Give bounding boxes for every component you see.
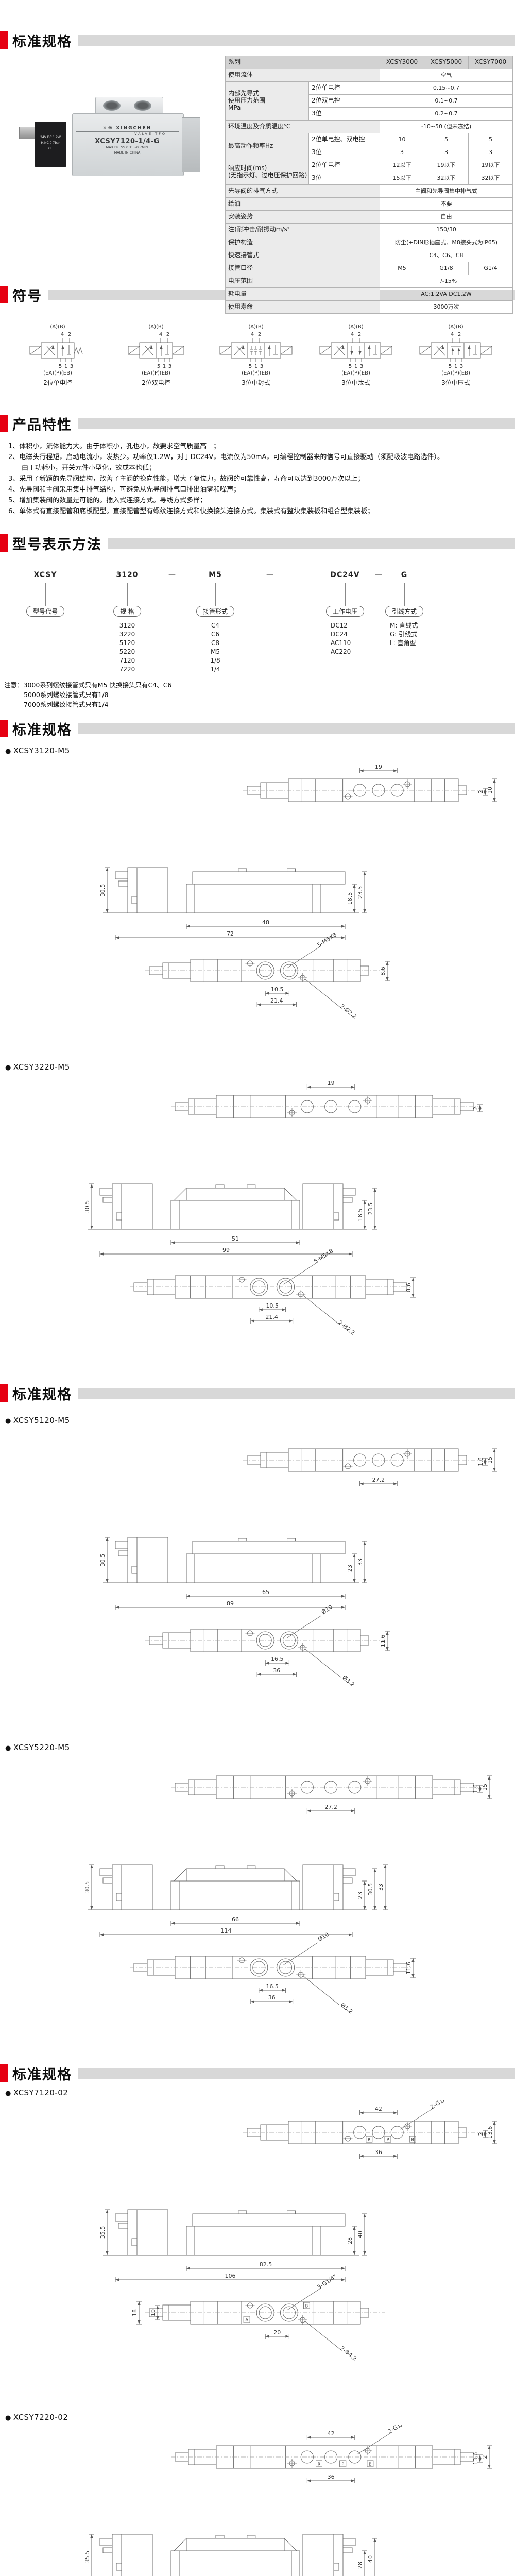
svg-text:4: 4 [451,332,454,337]
model-part: C6 [211,630,219,638]
svg-text:19: 19 [328,1080,335,1087]
svg-text:Ø3.2: Ø3.2 [339,2002,354,2015]
table-cell: 环境温度及介质温度℃ [226,121,380,133]
svg-text:99: 99 [222,1247,230,1253]
table-cell: 5 [424,133,469,146]
svg-text:3: 3 [168,364,171,369]
table-cell: 主阀和先导阀集中排气式 [380,185,513,198]
section-marker [0,534,8,552]
svg-text:15: 15 [482,1784,488,1791]
drawing-label-xcsy3220-m5: ●XCSY3220-M5 [5,1062,70,1072]
svg-text:2: 2 [358,332,361,337]
table-cell: 32以下 [424,172,469,185]
svg-text:B: B [369,2462,372,2467]
feature-line: 5、增加集装阀的数量是可能的。插入式连接方式。导线方式多样； [8,495,508,506]
valve-faceplate: ✕® XINGCHEN VALVE TFQ XCSY7120-1/4-G MAX… [76,126,179,156]
svg-text:18: 18 [131,2309,138,2316]
model-part [45,583,46,606]
section-title: 标准规格 [12,30,72,50]
model-part: C8 [211,639,219,647]
table-row: 最高动作频率Hz2位单电控、双电控1055 [226,133,513,146]
drawing-label-xcsy5120-m5: ●XCSY5120-M5 [5,1416,70,1425]
svg-text:36: 36 [268,1994,276,2001]
table-row: 使用流体空气 [226,69,513,82]
svg-text:42: 42 [375,2106,382,2112]
svg-text:4: 4 [61,332,64,337]
section-header-features: 产品特性 [0,414,515,433]
table-cell: 系列 [226,56,380,69]
table-cell: 3 [424,146,469,159]
section-title: 标准规格 [12,719,72,739]
svg-text:2-Ø2.2: 2-Ø2.2 [339,1003,358,1020]
datasheet-page: 标准规格 符号 产品特性 型号表示方法 标准规格 标准规格 标准规格 24V D… [0,0,515,2576]
svg-text:36: 36 [375,2149,382,2156]
feature-line: 6、单体式有直接配管和底板配型。直接配管型有螺纹连接方式和快换接头连接方式。集装… [8,506,508,517]
table-cell: G1/4 [469,262,513,275]
svg-text:(EA)(P)(EB): (EA)(P)(EB) [341,370,370,376]
valve-symbol-3位中泄式: (A)(B)42513(EA)(P)(EB)3位中泄式 [320,324,392,386]
table-cell: 5 [469,133,513,146]
feature-list: 1、体积小，流体能力大。由于体积小，孔也小，故要求空气质量高 ；2、电磁头行程短… [8,441,508,517]
table-cell: 2位双电控 [309,95,380,108]
table-cell: 3 [469,146,513,159]
section-bar [78,418,515,429]
model-part [404,583,405,606]
table-cell: 使用流体 [226,69,380,82]
svg-text:5: 5 [249,364,252,369]
svg-text:2: 2 [68,332,71,337]
svg-text:5: 5 [449,364,452,369]
svg-text:82.5: 82.5 [260,2261,272,2268]
svg-text:2位双电控: 2位双电控 [142,379,170,386]
top-view: 19210 [243,764,497,802]
drawing-xcsy7120-02: 42213.6362-G1/8"RPB35.5284082.5106181020… [0,2100,515,2399]
section-title: 产品特性 [12,414,72,434]
section-bar [78,1388,515,1399]
svg-text:R: R [368,2138,371,2142]
model-part: 7220 [119,665,135,673]
table-row: 快速接管式C4、C6、C8 [226,249,513,262]
svg-text:35.5: 35.5 [84,2551,91,2564]
valve-symbol-2位单电控: (A)(B)42513(EA)(P)(EB)2位单电控 [30,324,82,386]
table-cell: M5 [380,262,424,275]
front-view: 30.518.523.55199 [84,1184,377,1257]
svg-text:10: 10 [150,2309,157,2316]
model-part: DC24 [331,630,348,638]
drawing-xcsy5220-m5: 1.61527.230.52330.5336611411.616.536Ø10Ø… [0,1755,515,2049]
model-part: DC24V [326,571,364,580]
section-marker [0,286,8,303]
svg-text:28: 28 [357,2562,364,2569]
model-part: 3120 [112,571,143,580]
svg-text:72: 72 [227,930,234,937]
svg-text:15: 15 [487,1456,493,1464]
brand-logo-text: ✕® XINGCHEN [76,126,179,131]
table-cell: XCSY7000 [469,56,513,69]
section-marker [0,31,8,49]
svg-text:3位中泄式: 3位中泄式 [341,379,370,386]
svg-text:27.2: 27.2 [372,1477,385,1483]
drawing-label-xcsy7120-02: ●XCSY7120-02 [5,2088,68,2097]
model-note: 注意：3000系列螺纹接管式只有M5 快换接头只有C4、C6 [4,680,171,690]
svg-text:51: 51 [232,1235,239,1242]
model-part: XCSY [29,571,61,580]
svg-text:2-G1/8": 2-G1/8" [387,2425,409,2435]
table-cell: 安装姿势 [226,211,380,224]
svg-text:30.5: 30.5 [84,1881,91,1894]
svg-text:(A)(B): (A)(B) [248,324,263,330]
front-view: 35.52840132 [84,2534,377,2576]
svg-text:2-Φ4.2: 2-Φ4.2 [339,2345,358,2362]
model-part: 1/8 [210,656,220,665]
table-cell: 2位单电控 [309,82,380,95]
table-cell: 不要 [380,198,513,211]
svg-text:(A)(B): (A)(B) [348,324,363,330]
svg-text:3位中封式: 3位中封式 [242,379,270,386]
table-cell: 0.2~0.7 [380,108,513,121]
brand-valve-text: VALVE TFQ [76,131,179,136]
drawing-label-xcsy5220-m5: ●XCSY5220-M5 [5,1743,70,1752]
table-cell: XCSY3000 [380,56,424,69]
svg-text:2-Ø2.2: 2-Ø2.2 [337,1319,356,1336]
model-part: 型号代号 [26,606,64,617]
model-part: G [397,571,412,580]
feature-line: 3、采用了新颖的先导阀结构，改善了主阀的换向性能，增大了复位力，故阀的可靠性高，… [8,473,508,484]
svg-text:B: B [411,2138,414,2142]
top-view: 1.61527.2 [171,1776,492,1814]
svg-text:(EA)(P)(EB): (EA)(P)(EB) [142,370,170,376]
table-cell: 响应时间(ms)(无指示灯、过电压保护回路) [226,159,309,185]
svg-text:8.6: 8.6 [405,1283,412,1292]
table-cell: 2位单电控 [309,159,380,172]
svg-text:P: P [341,2462,344,2467]
table-row: 内部先导式使用压力范围MPa2位单电控0.15~0.7 [226,82,513,95]
table-cell: 12以下 [380,159,424,172]
svg-text:(A)(B): (A)(B) [50,324,65,330]
table-cell: 3位 [309,108,380,121]
svg-text:2: 2 [477,790,484,794]
table-cell: 19以下 [469,159,513,172]
section-header-specs-3000: 标准规格 [0,719,515,738]
table-row: 响应时间(ms)(无指示灯、过电压保护回路)2位单电控12以下19以下19以下 [226,159,513,172]
svg-text:36: 36 [273,1667,280,1674]
svg-text:5: 5 [349,364,352,369]
drawing-label-xcsy3120-m5: ●XCSY3120-M5 [5,746,70,755]
svg-text:3: 3 [360,364,363,369]
svg-text:2: 2 [258,332,261,337]
table-cell: -10~50 (但未冻结) [380,121,513,133]
spec-table: 系列XCSY3000XCSY5000XCSY7000使用流体空气内部先导式使用压… [225,56,512,314]
svg-text:48: 48 [262,919,269,926]
model-part: DC12 [331,621,348,630]
port-hole [103,100,121,111]
ce-mark: CE [35,146,66,152]
svg-text:30.5: 30.5 [99,1554,106,1567]
svg-text:21.4: 21.4 [270,997,283,1004]
bottom-view: 11.616.536Ø10Ø3.2 [145,1604,390,1688]
svg-text:3: 3 [260,364,263,369]
svg-text:23: 23 [347,1565,353,1572]
svg-text:30.5: 30.5 [99,884,106,897]
svg-text:5: 5 [59,364,62,369]
svg-text:65: 65 [262,1589,269,1596]
svg-text:2: 2 [477,2132,484,2136]
table-cell: 15以下 [380,172,424,185]
front-view: 30.52330.53366114 [84,1865,388,1937]
port-hole [134,100,151,111]
table-cell: 自由 [380,211,513,224]
svg-text:18.5: 18.5 [347,892,353,905]
svg-text:16.5: 16.5 [271,1656,284,1663]
svg-text:21.4: 21.4 [265,1314,278,1320]
svg-text:3-G1/4": 3-G1/4" [316,2273,338,2291]
model-part [127,583,128,606]
svg-text:3: 3 [70,364,73,369]
coil-connector [19,127,37,139]
svg-text:35.5: 35.5 [99,2226,106,2239]
model-part: C4 [211,621,219,630]
top-view: 1.61527.2 [243,1449,497,1486]
table-cell: +/-15% [380,275,513,288]
valve-symbol-3位中压式: (A)(B)42513(EA)(P)(EB)3位中压式 [420,324,492,386]
svg-text:(A)(B): (A)(B) [448,324,463,330]
table-cell: 空气 [380,69,513,82]
photo-model-number: XCSY7120-1/4-G [76,138,179,145]
bottom-view: 11.616.536Ø10Ø3.2 [130,1931,416,2015]
svg-text:20: 20 [273,2329,281,2336]
svg-text:B: B [305,2304,308,2309]
model-part: AC110 [331,639,351,647]
table-cell: XCSY5000 [424,56,469,69]
svg-text:66: 66 [232,1916,239,1923]
svg-text:13.6: 13.6 [487,2126,493,2139]
front-view: 35.5284082.5106 [99,2210,367,2282]
valve-symbols: (A)(B)42513(EA)(P)(EB)2位单电控(A)(B)42513(E… [0,308,515,407]
model-part [215,583,216,606]
svg-text:42: 42 [328,2430,335,2437]
section-header-specs-5000: 标准规格 [0,1384,515,1402]
section-marker [0,2064,8,2082]
svg-text:(EA)(P)(EB): (EA)(P)(EB) [43,370,72,376]
svg-text:27.2: 27.2 [324,1804,337,1810]
svg-text:4: 4 [251,332,254,337]
svg-text:R: R [318,2462,321,2467]
svg-text:Ø10: Ø10 [320,1604,334,1616]
model-part [345,583,346,606]
svg-text:2-G1/8": 2-G1/8" [429,2100,451,2110]
top-view: 192 [171,1080,483,1118]
table-cell: 防尘(+DIN形插座式、M8接头式为IP65) [380,236,513,249]
model-part: 3120 [119,621,135,630]
svg-text:11.6: 11.6 [405,1962,412,1975]
table-cell: 最高动作频率Hz [226,133,309,159]
svg-text:2: 2 [482,2455,488,2459]
table-cell: 快速接管式 [226,249,380,262]
model-part: — [375,571,382,579]
valve-top-ports [95,97,163,115]
section-title: 标准规格 [12,1383,72,1403]
section-bar [78,35,515,46]
svg-text:Ø10: Ø10 [317,1931,330,1943]
svg-text:2: 2 [472,1107,479,1110]
model-part: 规 格 [113,606,141,617]
model-designation-diagram: XCSY型号代号3120规 格312032205120522071207220M… [0,567,515,719]
model-part: M5 [204,571,226,580]
table-cell: 耗电量 [226,288,380,301]
table-cell: 给油 [226,198,380,211]
drawing-xcsy5120-m5: 1.61527.230.52333658911.616.536Ø10Ø3.2 [0,1428,515,1722]
svg-text:23.5: 23.5 [357,886,364,899]
svg-text:P: P [387,2138,389,2142]
svg-text:30.5: 30.5 [367,1883,374,1896]
table-cell: 3位 [309,146,380,159]
table-cell: 0.15~0.7 [380,82,513,95]
svg-text:11.6: 11.6 [380,1635,386,1648]
section-title: 型号表示方法 [12,533,102,553]
section-header-specs-7000: 标准规格 [0,2064,515,2082]
svg-text:3: 3 [460,364,463,369]
feature-line: 由于功耗小，开关元件小型化，故成本也低； [8,463,508,473]
section-title: 标准规格 [12,2063,72,2083]
model-part: 5220 [119,648,135,656]
table-cell: 接管口径 [226,262,380,275]
drawing-xcsy7220-02: 4213.62362-G1/8"RPB35.528401321810203-G1… [0,2425,515,2576]
svg-text:(A)(B): (A)(B) [148,324,163,330]
top-view: 42213.6362-G1/8"RPB [243,2100,497,2159]
front-view: 30.523336589 [99,1537,367,1610]
table-cell: G1/8 [424,262,469,275]
section-bar [78,723,515,734]
table-cell: AC:1.2VA DC1.2W [380,288,513,301]
svg-text:4: 4 [351,332,354,337]
svg-text:2位单电控: 2位单电控 [43,379,72,386]
table-cell: 2位单电控、双电控 [309,133,380,146]
feature-line: 2、电磁头行程短，启动电流小，发热少。功率仅1.2W，对于DC24V，电流仅为5… [8,452,508,463]
table-row: 保护构造防尘(+DIN形插座式、M8接头式为IP65) [226,236,513,249]
section-marker [0,720,8,737]
coil-spec-label: H.NC 0-7bar [35,141,66,146]
table-cell: 10 [380,133,424,146]
model-part: 7120 [119,656,135,665]
table-cell: 内部先导式使用压力范围MPa [226,82,309,121]
svg-text:23.5: 23.5 [367,1202,374,1215]
svg-text:16.5: 16.5 [266,1983,279,1990]
svg-text:1: 1 [163,364,166,369]
bottom-view: 8.610.521.45-M5X82-Ø2.2 [130,1247,416,1336]
model-part: 引线方式 [385,606,423,617]
table-cell: 32以下 [469,172,513,185]
table-row: 系列XCSY3000XCSY5000XCSY7000 [226,56,513,69]
coil-voltage-label: 24V DC 1.2W [35,135,66,141]
table-cell: C4、C6、C8 [380,249,513,262]
svg-text:10: 10 [487,787,493,794]
svg-text:Ø3.2: Ø3.2 [341,1674,356,1688]
bottom-view: 1810203-G1/4"2-Φ4.2AB [131,2273,385,2362]
photo-pressure-text: MAX.PRESS 0.15~0.7MPa [76,145,179,150]
svg-text:13.6: 13.6 [472,2452,479,2465]
drawing-xcsy3120-m5: 1921030.518.523.548728.610.521.45-M5X82-… [0,758,515,1037]
table-cell: 电压范围 [226,275,380,288]
svg-text:33: 33 [357,1558,364,1566]
feature-line: 1、体积小，流体能力大。由于体积小，孔也小，故要求空气质量高 ； [8,441,508,452]
section-title: 符号 [12,285,42,305]
model-part: AC220 [331,648,351,656]
model-part: M5 [211,648,220,656]
front-view: 30.518.523.54872 [99,868,367,940]
top-view: 4213.62362-G1/8"RPB [171,2425,492,2483]
svg-text:23: 23 [357,1892,364,1899]
model-part: — [168,571,176,579]
section-marker [0,415,8,432]
table-cell: 先导阀的排气方式 [226,185,380,198]
model-note: 7000系列螺纹接管式只有1/4 [24,700,108,709]
svg-text:1: 1 [254,364,257,369]
table-row: 安装姿势自由 [226,211,513,224]
table-row: 耗电量AC:1.2VA DC1.2W [226,288,513,301]
table-cell: 3 [380,146,424,159]
valve-end-cap [182,117,200,172]
table-cell: 注)耐冲击/耐振动m/s² [226,224,380,236]
model-part: 1/4 [210,665,220,673]
model-part: G: 引线式 [390,630,417,638]
svg-text:1: 1 [64,364,67,369]
product-photo: 24V DC 1.2W H.NC 0-7bar CE ✕® XINGCHEN V… [13,76,202,199]
svg-text:10.5: 10.5 [271,986,284,993]
section-header-model-code: 型号表示方法 [0,534,515,552]
table-cell: 19以下 [424,159,469,172]
solenoid-coil: 24V DC 1.2W H.NC 0-7bar CE [35,122,66,167]
svg-text:(EA)(P)(EB): (EA)(P)(EB) [242,370,270,376]
section-bar [78,2068,515,2079]
svg-text:1: 1 [354,364,357,369]
svg-text:18.5: 18.5 [357,1209,364,1222]
svg-text:114: 114 [221,1927,232,1934]
table-row: 电压范围+/-15% [226,275,513,288]
table-cell: 保护构造 [226,236,380,249]
feature-line: 4、先导阀和主阀采用集中排气结构，可避免从先导阀排气口排出油雾和噪声； [8,484,508,495]
model-part: 3220 [119,630,135,638]
table-cell: 3位 [309,172,380,185]
table-row: 注)耐冲击/耐振动m/s²150/30 [226,224,513,236]
table-row: 接管口径M5G1/8G1/4 [226,262,513,275]
svg-text:2: 2 [458,332,461,337]
model-part: 5120 [119,639,135,647]
svg-text:19: 19 [375,764,382,770]
svg-text:(EA)(P)(EB): (EA)(P)(EB) [441,370,470,376]
svg-text:28: 28 [347,2237,353,2244]
svg-text:4: 4 [159,332,162,337]
svg-text:1.6: 1.6 [477,1457,484,1466]
drawing-label-xcsy7220-02: ●XCSY7220-02 [5,2413,68,2422]
svg-text:106: 106 [225,2273,236,2279]
photo-origin-text: MADE IN CHINA [76,150,179,156]
model-part: L: 直角型 [390,639,416,647]
svg-text:40: 40 [357,2231,364,2238]
svg-text:5-M5X8: 5-M5X8 [316,931,338,948]
svg-text:1: 1 [454,364,457,369]
table-row: 给油不要 [226,198,513,211]
table-cell: 0.1~0.7 [380,95,513,108]
svg-text:2: 2 [166,332,169,337]
model-part: M: 直线式 [390,621,418,630]
svg-text:8.6: 8.6 [380,967,386,976]
model-note: 5000系列螺纹接管式只有1/8 [24,690,108,700]
svg-text:40: 40 [367,2555,374,2563]
valve-symbol-2位双电控: (A)(B)42513(EA)(P)(EB)2位双电控 [128,324,184,386]
table-row: 环境温度及介质温度℃-10~50 (但未冻结) [226,121,513,133]
model-part: 接管形式 [196,606,234,617]
svg-text:5-M5X8: 5-M5X8 [313,1247,334,1265]
